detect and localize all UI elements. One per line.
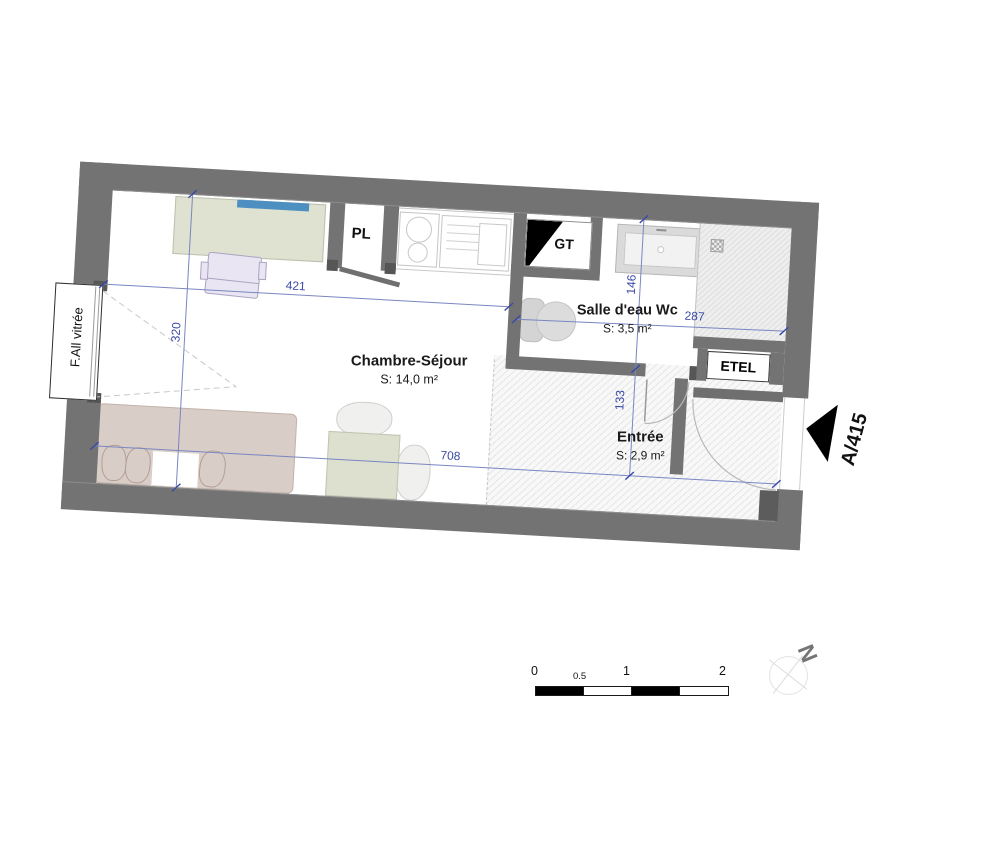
room-name: Entrée (585, 428, 695, 445)
bath-door-arc (645, 380, 689, 426)
scale-segment-black (631, 686, 681, 696)
dim-bath-depth: 146 (624, 274, 639, 295)
scale-tick-05: 0.5 (573, 671, 586, 682)
dim-entree-depth: 133 (612, 390, 627, 411)
entrance-door-arc (688, 399, 781, 490)
scale-bar: 0 0.5 1 2 (528, 664, 738, 698)
room-label-entree: Entrée S: 2,9 m² (585, 428, 695, 462)
window-swing-dashed (97, 291, 241, 405)
north-letter: N (792, 641, 823, 667)
scale-tick-1: 1 (623, 664, 630, 678)
room-name: Salle d'eau Wc (552, 302, 702, 318)
scale-segment-white (679, 686, 729, 696)
floor-plan: GT PL ETEL F.All vitrée (61, 162, 819, 550)
room-area: S: 14,0 m² (324, 372, 494, 386)
dim-chambre-width: 421 (285, 278, 306, 293)
room-label-chambre: Chambre-Séjour S: 14,0 m² (324, 352, 494, 386)
dim-total-width: 708 (440, 448, 461, 463)
room-area: S: 3,5 m² (552, 321, 702, 335)
bath-door-leaf-line (645, 380, 647, 422)
room-label-salle-deau: Salle d'eau Wc S: 3,5 m² (552, 302, 702, 335)
room-area: S: 2,9 m² (585, 448, 695, 462)
entrance-marker-label: A/415 (832, 393, 878, 486)
room-name: Chambre-Séjour (324, 352, 494, 369)
scale-tick-0: 0 (531, 664, 538, 678)
dim-chambre-depth: 320 (168, 322, 183, 343)
scale-segment-white (583, 686, 633, 696)
scale-tick-2: 2 (719, 664, 726, 678)
scale-segment-black (535, 686, 585, 696)
